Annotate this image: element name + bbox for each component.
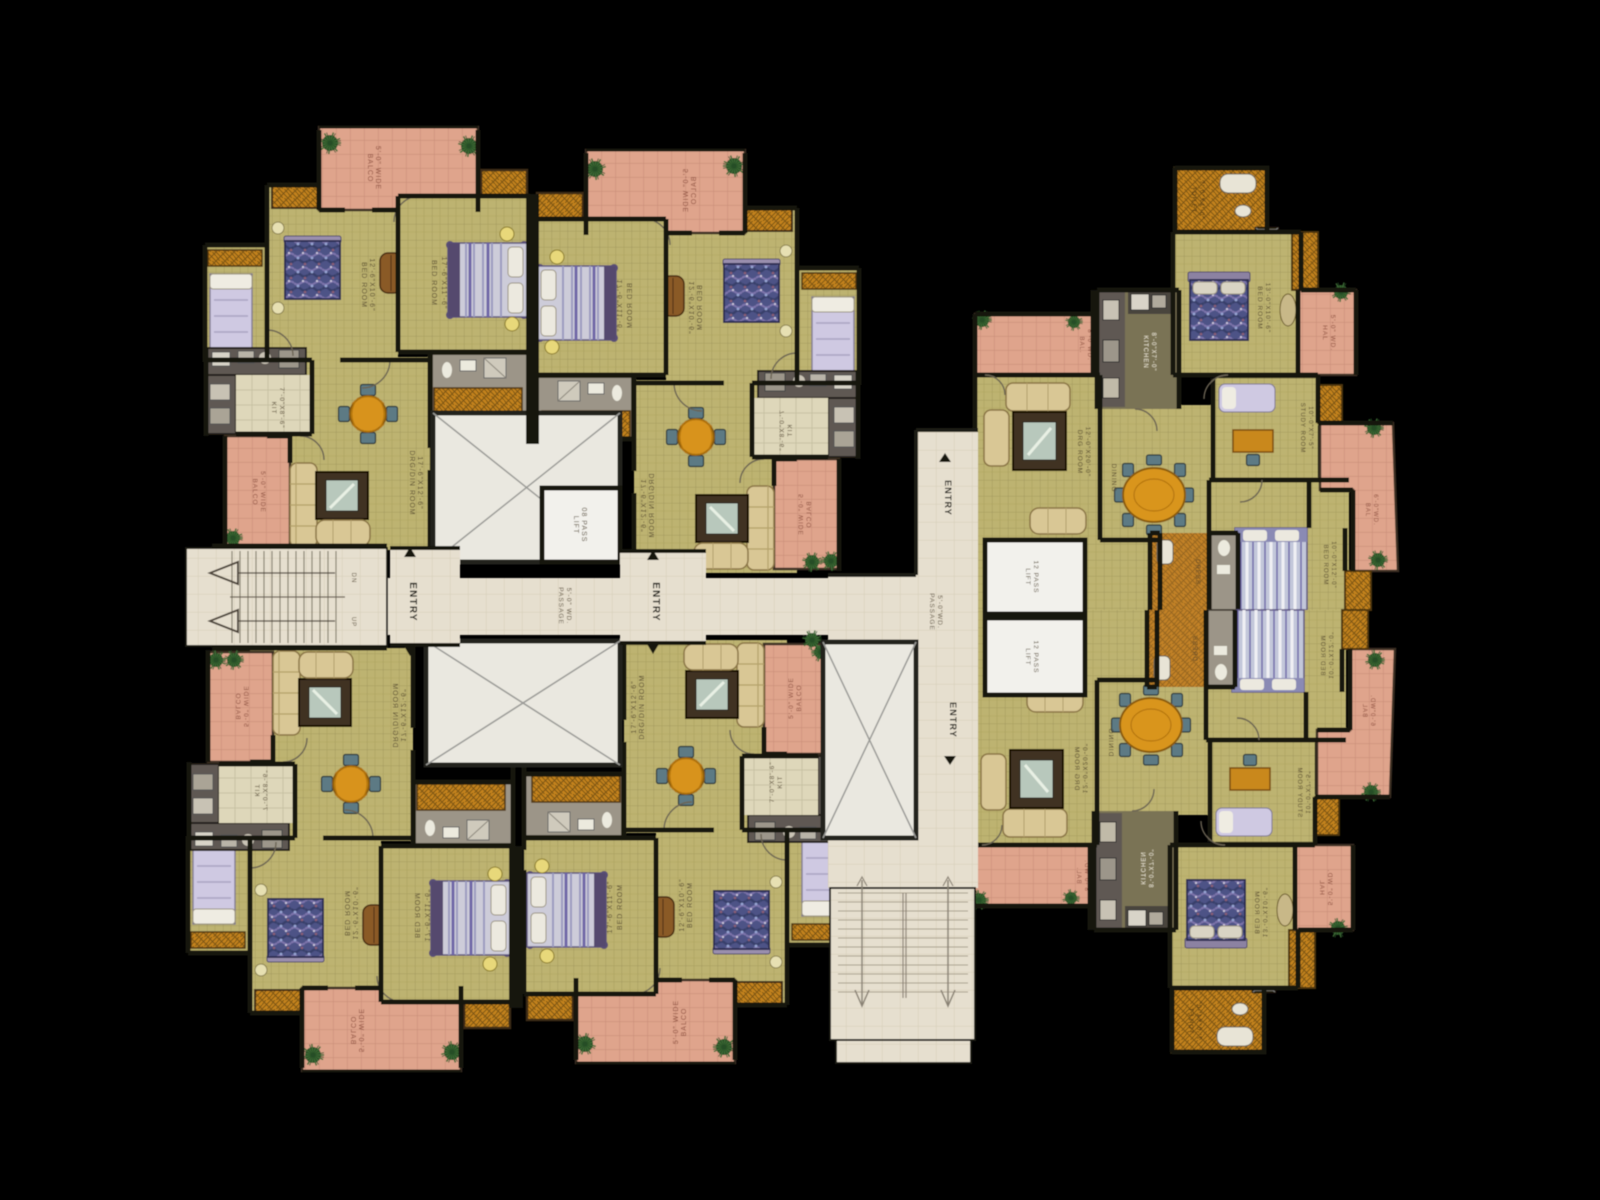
svg-text:LIFT: LIFT [1024,568,1031,585]
svg-text:6'-0"WD.: 6'-0"WD. [1369,694,1375,726]
svg-text:10'-0"X7'-5": 10'-0"X7'-5" [1307,406,1313,449]
svg-text:KIT: KIT [253,783,260,796]
svg-text:ENTRY: ENTRY [943,480,953,516]
svg-text:HAL: HAL [1318,879,1325,895]
svg-text:BAL: BAL [1364,503,1370,517]
svg-text:12'-0"X20'-0": 12'-0"X20'-0" [1081,743,1088,793]
svg-text:BALCO: BALCO [681,1008,688,1037]
svg-text:12'-6"X10'-6": 12'-6"X10'-6" [368,258,375,311]
svg-text:BED ROOM: BED ROOM [430,260,437,306]
svg-text:5'-0" WIDE: 5'-0" WIDE [374,146,381,190]
svg-text:13'-0"X10'-6": 13'-0"X10'-6" [1264,283,1271,333]
svg-text:DRG ROOM: DRG ROOM [1073,746,1080,790]
svg-text:5'-0" WIDE: 5'-0" WIDE [673,1000,680,1044]
svg-text:KIT: KIT [787,424,794,437]
svg-text:7'-0"X8'-6": 7'-0"X8'-6" [261,769,268,810]
svg-text:BAL: BAL [1361,703,1367,717]
svg-text:7'-0"X8'-6": 7'-0"X8'-6" [779,410,786,451]
svg-text:PASSAGE: PASSAGE [928,593,935,631]
svg-text:DRESS: DRESS [1191,635,1197,661]
svg-text:BED ROOM: BED ROOM [627,283,634,329]
svg-text:5'-0" WIDE: 5'-0" WIDE [798,494,805,536]
svg-text:DINING: DINING [1110,464,1117,493]
svg-text:17'-6"X11'-6": 17'-6"X11'-6" [617,280,624,333]
svg-text:17'-6"X12'-6": 17'-6"X12'-6" [641,479,648,532]
svg-text:STUDY ROOM: STUDY ROOM [1296,767,1302,818]
svg-text:BALCO: BALCO [691,177,698,206]
svg-text:5'-0" WD.: 5'-0" WD. [1326,869,1333,905]
svg-text:08 PASS: 08 PASS [580,508,587,543]
svg-text:HAL: HAL [1321,325,1328,341]
svg-text:BAL.: BAL. [1075,866,1081,883]
svg-text:ENTRY: ENTRY [407,582,418,622]
svg-text:DRG ROOM: DRG ROOM [1076,430,1083,474]
svg-text:12'-6"X10'-6": 12'-6"X10'-6" [689,281,696,334]
svg-text:12'-6"X10'-6": 12'-6"X10'-6" [351,886,358,939]
svg-text:7'-0"X8'-6": 7'-0"X8'-6" [769,761,776,802]
svg-text:PASSAGE: PASSAGE [557,587,564,625]
svg-text:7'-0"X4'-0": 7'-0"X4'-0" [1195,1001,1201,1040]
svg-text:ENTRY: ENTRY [948,702,958,738]
svg-text:8'-0"X7'-0": 8'-0"X7'-0" [1147,849,1153,888]
svg-text:17'-6"X12'-6": 17'-6"X12'-6" [416,456,423,509]
svg-text:LIFT: LIFT [572,516,579,534]
svg-text:BED ROOM: BED ROOM [687,882,694,928]
svg-text:17'-6"X11'-6": 17'-6"X11'-6" [423,889,430,942]
svg-text:10'-0"X12'-0": 10'-0"X12'-0" [1327,631,1333,679]
svg-text:BED ROOM: BED ROOM [360,262,367,308]
svg-text:DRG/DIN ROOM: DRG/DIN ROOM [639,674,646,739]
svg-text:BALCO: BALCO [251,478,258,505]
svg-text:17'-6"X12'-6": 17'-6"X12'-6" [631,680,638,733]
svg-text:KITCHEN: KITCHEN [1139,851,1145,884]
svg-text:17'-6"X12'-6": 17'-6"X12'-6" [399,688,406,741]
svg-text:BALCO: BALCO [366,154,373,183]
svg-text:BED ROOM: BED ROOM [413,892,420,938]
svg-text:BED ROOM: BED ROOM [617,884,624,930]
svg-text:BALCO: BALCO [349,1016,356,1045]
svg-text:12 PASS: 12 PASS [1032,641,1039,674]
svg-text:BAL.: BAL. [1078,336,1084,353]
svg-text:DRG/DIN ROOM: DRG/DIN ROOM [408,450,415,515]
svg-text:5'-0"WD.: 5'-0"WD. [936,595,943,629]
svg-text:BED ROOM: BED ROOM [1322,545,1328,586]
svg-text:13'-0"X10'-6": 13'-0"X10'-6" [1261,887,1268,937]
svg-text:TOILET: TOILET [1190,187,1196,214]
svg-text:TOILET: TOILET [1187,1007,1193,1034]
svg-text:DINING: DINING [1107,728,1114,757]
svg-text:BALCO: BALCO [234,692,241,719]
svg-text:5'-0" WIDE: 5'-0" WIDE [259,471,266,513]
svg-text:5'-0" WIDE: 5'-0" WIDE [683,169,690,213]
svg-text:UP: UP [350,617,356,627]
svg-text:DRESS: DRESS [1194,559,1200,585]
svg-text:5'-0" WIDE: 5'-0" WIDE [242,685,249,727]
svg-text:5'-0" WIDE: 5'-0" WIDE [788,677,795,719]
svg-text:BED ROOM: BED ROOM [1256,286,1263,329]
svg-text:KITCHEN: KITCHEN [1142,335,1148,368]
svg-text:KIT: KIT [270,401,277,414]
svg-text:5'-0" WIDE: 5'-0" WIDE [357,1008,364,1052]
svg-text:BALCO: BALCO [806,501,813,528]
svg-text:LIFT: LIFT [1024,648,1031,665]
svg-text:8'-0"X7'-0": 8'-0"X7'-0" [1150,333,1156,372]
svg-text:DRG/DIN ROOM: DRG/DIN ROOM [391,682,398,747]
svg-text:10'-0"X12'-0": 10'-0"X12'-0" [1330,541,1336,589]
svg-text:6'-0"WD.: 6'-0"WD. [1372,494,1378,526]
svg-text:BED ROOM: BED ROOM [1319,635,1325,676]
svg-text:BED ROOM: BED ROOM [697,285,704,331]
svg-text:10'-0"X7'-5": 10'-0"X7'-5" [1304,770,1310,813]
svg-text:DRG/DIN ROOM: DRG/DIN ROOM [649,473,656,538]
svg-text:STUDY ROOM: STUDY ROOM [1299,403,1305,454]
svg-text:5'-0" WD.: 5'-0" WD. [1329,315,1336,351]
svg-text:5'-0" WD.: 5'-0" WD. [565,588,572,624]
svg-text:BED ROOM: BED ROOM [1253,890,1260,933]
svg-text:17'-6"X11'-6": 17'-6"X11'-6" [440,257,447,310]
svg-text:DN: DN [350,573,356,584]
svg-text:BED ROOM: BED ROOM [343,890,350,936]
svg-text:7'-0"X4'-0": 7'-0"X4'-0" [1198,181,1204,220]
svg-text:12'-6"X10'-6": 12'-6"X10'-6" [679,878,686,931]
svg-text:KIT: KIT [777,775,784,788]
svg-text:12 PASS: 12 PASS [1032,561,1039,594]
svg-text:12'-0"X20'-0": 12'-0"X20'-0" [1084,427,1091,477]
svg-text:7'-0"X8'-6": 7'-0"X8'-6" [278,387,285,428]
svg-text:ENTRY: ENTRY [650,582,661,622]
svg-text:BALCO: BALCO [796,684,803,711]
svg-text:17'-6"X11'-6": 17'-6"X11'-6" [607,881,614,934]
